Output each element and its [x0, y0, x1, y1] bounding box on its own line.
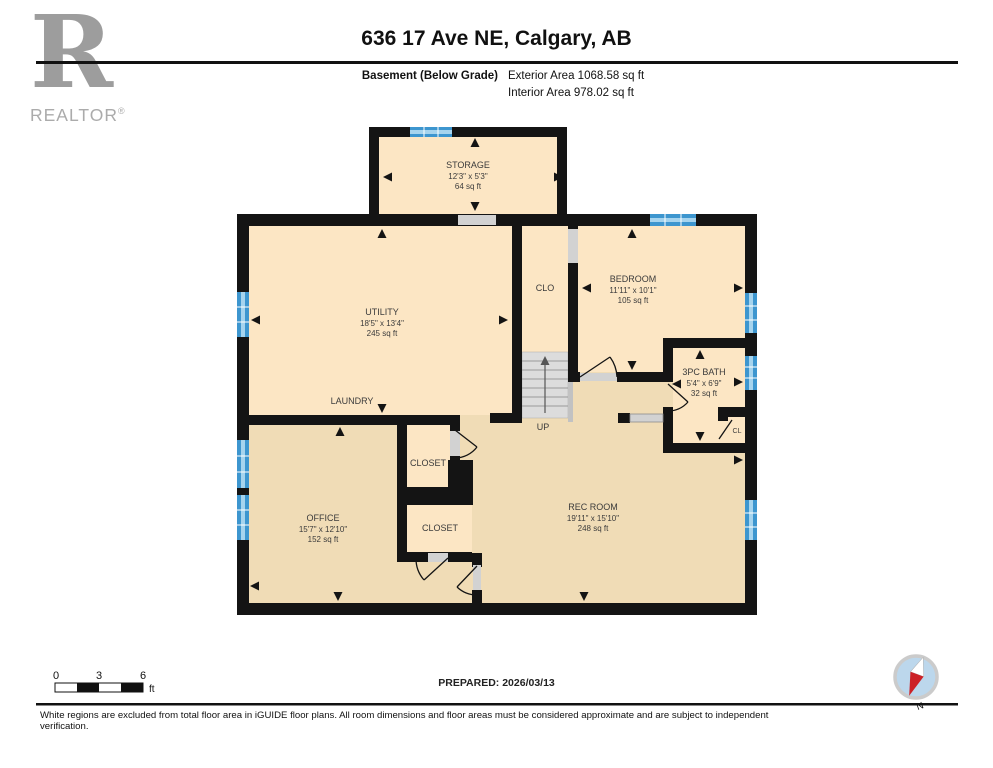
window: [650, 214, 696, 226]
closet-upper-threshold: [450, 431, 460, 456]
bath-area: 32 sq ft: [691, 389, 718, 398]
window: [237, 495, 249, 540]
prepared-date: PREPARED: 2026/03/13: [0, 677, 993, 689]
floor-plan-page: R REALTOR® 636 17 Ave NE, Calgary, AB Ba…: [0, 0, 993, 768]
storage-dims: 12'3" x 5'3": [448, 172, 488, 181]
floor-plan-svg: STORAGE 12'3" x 5'3" 64 sq ft UTILITY 18…: [0, 0, 993, 768]
half-wall-opening: [630, 414, 663, 422]
footer-rule: [36, 703, 958, 706]
registered-mark: ®: [118, 106, 126, 116]
bedroom-label: BEDROOM: [610, 274, 657, 284]
staircase: [522, 352, 573, 422]
stairs-up-label: UP: [537, 422, 550, 432]
storage-opening: [458, 215, 496, 225]
office-area: 152 sq ft: [308, 535, 339, 544]
header-rule: [36, 61, 958, 64]
realtor-brand: REALTOR: [30, 105, 118, 125]
room-closet-upper: [407, 425, 450, 487]
window: [745, 500, 757, 540]
disclaimer-text: White regions are excluded from total fl…: [40, 710, 800, 732]
rec-room-area: 248 sq ft: [578, 524, 609, 533]
office-label: OFFICE: [307, 513, 340, 523]
bath-dims: 5'4" x 6'9": [687, 379, 722, 388]
bedroom-door-threshold: [580, 373, 617, 381]
office-dims: 15'7" x 12'10": [299, 525, 347, 534]
utility-dims: 18'5" x 13'4": [360, 319, 404, 328]
utility-label: UTILITY: [365, 307, 399, 317]
closet-upper-label: CLOSET: [410, 458, 447, 468]
window: [745, 293, 757, 333]
compass-north-label: N: [915, 700, 925, 713]
room-bedroom-lower: [578, 338, 663, 372]
clo-label: CLO: [536, 283, 555, 293]
realtor-logo-icon: R: [30, 2, 113, 102]
utility-area: 245 sq ft: [367, 329, 398, 338]
bath-label: 3PC BATH: [682, 367, 725, 377]
storage-area: 64 sq ft: [455, 182, 482, 191]
rec-room-label: REC ROOM: [568, 502, 618, 512]
window: [410, 127, 452, 137]
bedroom-area: 105 sq ft: [618, 296, 649, 305]
cl-label: CL: [733, 428, 742, 435]
storage-label: STORAGE: [446, 160, 490, 170]
laundry-label: LAUNDRY: [331, 396, 374, 406]
bedroom-dims: 11'11" x 10'1": [609, 286, 656, 295]
room-bedroom: [578, 226, 745, 338]
clo-opening: [568, 229, 578, 263]
realtor-logo-text: REALTOR®: [30, 105, 126, 126]
rec-room-dims: 19'11" x 15'10": [567, 514, 619, 523]
closet-lower-label: CLOSET: [422, 523, 459, 533]
window: [237, 292, 249, 337]
window: [237, 440, 249, 488]
window: [745, 356, 757, 390]
